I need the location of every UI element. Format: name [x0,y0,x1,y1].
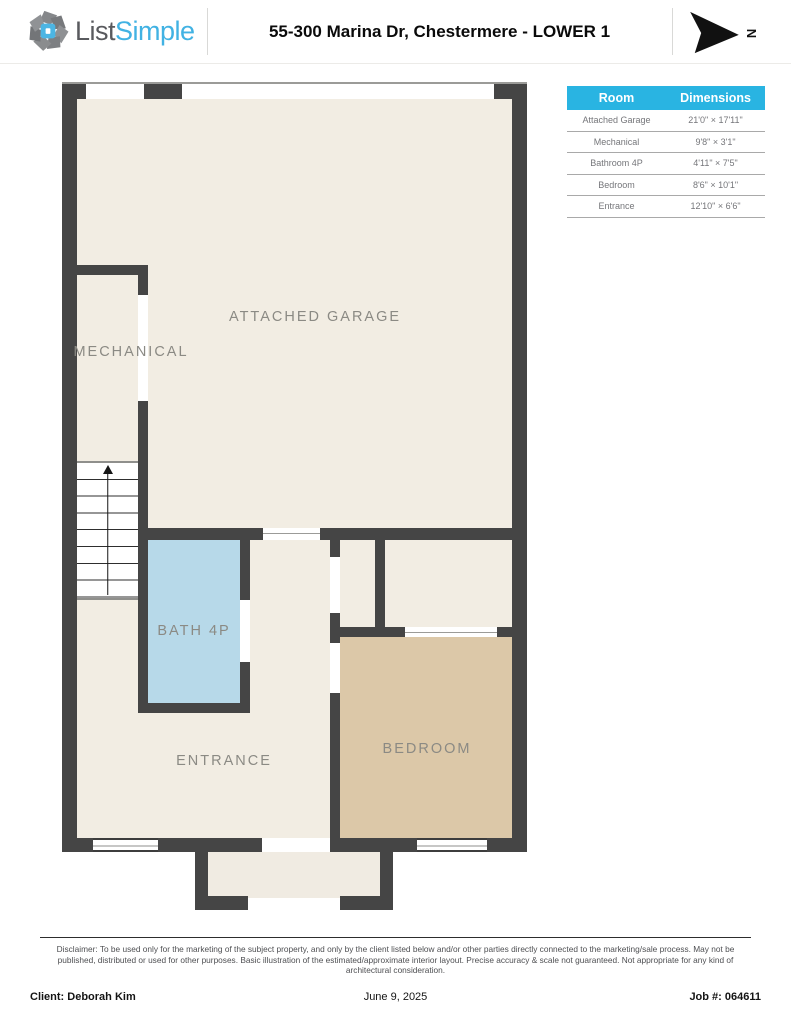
table-row: Bathroom 4P 4'11" × 7'5" [567,153,765,175]
room-dimensions-table: Room Dimensions Attached Garage 21'0" × … [567,86,765,218]
bathroom-door-opening [240,600,250,662]
north-indicator: N [683,11,773,55]
mechanical-wall-right [138,401,148,533]
garage-door-opening [86,84,144,99]
closet-door-opening [330,557,340,613]
exterior-wall-left [62,84,77,852]
date-label: June 9, 2025 [0,991,791,1003]
bathroom-wall-bottom [138,703,250,713]
room-dimensions: 9'8" × 3'1" [666,137,765,147]
room-label-garage: ATTACHED GARAGE [229,309,401,325]
room-dimensions: 4'11" × 7'5" [666,158,765,168]
window [93,838,158,852]
room-name: Bathroom 4P [567,158,666,168]
room-dimensions: 8'6" × 10'1" [666,180,765,190]
porch-wall-bottom-left [195,896,248,910]
job-number-label: Job #: 064611 [689,991,761,1003]
mechanical-wall-top [62,265,148,275]
page-title: 55-300 Marina Dr, Chestermere - LOWER 1 [207,0,672,63]
table-header-row: Room Dimensions [567,86,765,110]
room-name: Mechanical [567,137,666,147]
stair-up-arrow-icon [103,465,113,474]
header-divider-right [672,8,673,55]
aperture-camera-icon [26,9,70,53]
listsimple-logo: ListSimple [26,9,195,53]
table-row: Mechanical 9'8" × 3'1" [567,132,765,154]
footer-divider-line [40,937,751,938]
bedroom-floor-fill [340,636,512,839]
logo-word-simple: Simple [115,16,195,46]
stair-direction-line [107,473,109,595]
wall-segment [332,838,417,852]
north-arrow-icon [683,11,745,55]
room-label-bedroom: BEDROOM [383,741,472,757]
bathroom-wall-left [138,533,148,713]
column-header-dimensions: Dimensions [666,91,765,105]
column-header-room: Room [567,91,666,105]
staircase [77,461,138,600]
room-label-bath: BATH 4P [157,623,230,639]
room-name: Entrance [567,201,666,211]
table-row: Bedroom 8'6" × 10'1" [567,175,765,197]
logo-wordmark: ListSimple [75,9,195,53]
wall-segment [144,84,182,99]
room-dimensions: 12'10" × 6'6" [666,201,765,211]
page-header: ListSimple 55-300 Marina Dr, Chestermere… [0,0,791,64]
closet-wall [375,528,385,637]
bathroom-floor-fill [148,539,240,704]
porch-wall-bottom-right [340,896,393,910]
window [417,838,487,852]
mechanical-wall-right [138,265,148,295]
north-label: N [744,28,759,37]
entry-door-opening [262,838,332,852]
bedroom-door-opening [330,643,340,693]
disclaimer-text: Disclaimer: To be used only for the mark… [45,944,746,976]
garage-door-opening [182,84,494,99]
wall-segment [487,838,527,852]
bedroom-closet-opening [405,627,497,637]
room-label-entrance: ENTRANCE [176,753,272,769]
wall-segment [158,838,262,852]
wall-segment [62,838,93,852]
table-row: Entrance 12'10" × 6'6" [567,196,765,218]
table-row: Attached Garage 21'0" × 17'11" [567,110,765,132]
porch-floor-fill [205,846,383,898]
room-dimensions: 21'0" × 17'11" [666,115,765,125]
room-name: Bedroom [567,180,666,190]
garage-interior-door-opening [263,528,320,540]
room-label-mechanical: MECHANICAL [73,344,188,360]
logo-word-list: List [75,16,115,46]
floor-plan-page: ListSimple 55-300 Marina Dr, Chestermere… [0,0,791,1024]
room-name: Attached Garage [567,115,666,125]
exterior-wall-right [512,84,527,852]
